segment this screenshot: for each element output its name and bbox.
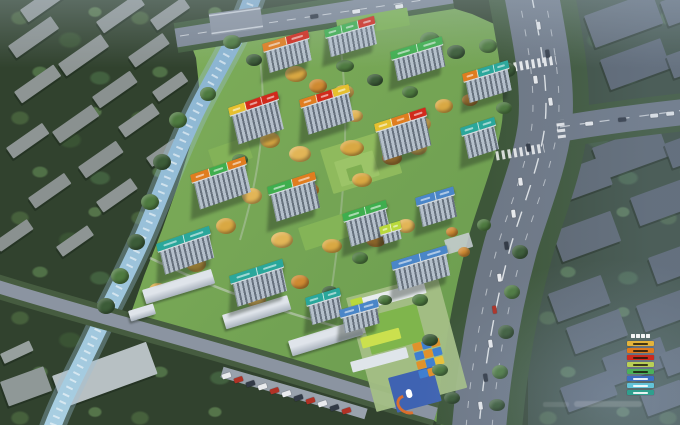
legend-title (620, 334, 660, 338)
legend-title-glyph (646, 334, 650, 338)
legend-color-chip (627, 390, 654, 395)
legend-color-chip (627, 348, 654, 353)
legend-color-chip (627, 355, 654, 360)
legend-title-glyph (631, 334, 635, 338)
legend-panel (620, 334, 660, 397)
watermark (574, 401, 642, 407)
watermark-secondary (543, 402, 569, 407)
legend-title-glyph (636, 334, 640, 338)
legend-color-chip (627, 369, 654, 374)
aerial-masterplan-render (0, 0, 680, 425)
legend-color-chip (627, 376, 654, 381)
terrain-and-roads (0, 0, 680, 425)
legend-entries (620, 341, 660, 395)
legend-color-chip (627, 383, 654, 388)
legend-title-glyph (641, 334, 645, 338)
legend-color-chip (627, 362, 654, 367)
legend-color-chip (627, 341, 654, 346)
